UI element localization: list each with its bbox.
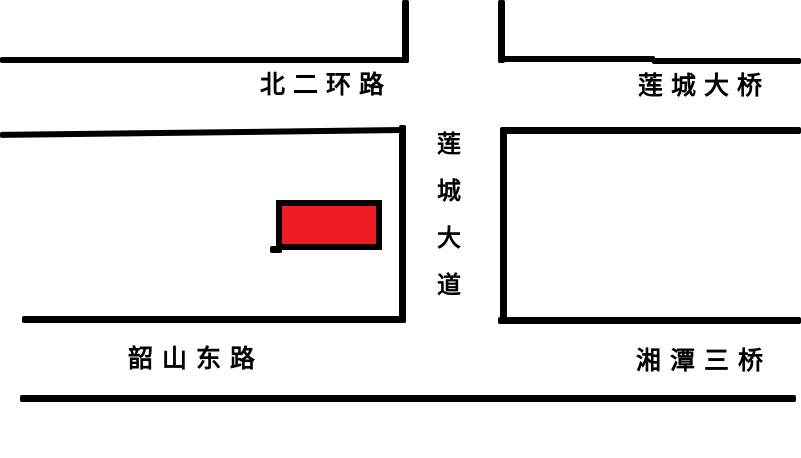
- label-liancheng-avenue-char-4: 道: [437, 274, 461, 298]
- label-liancheng-avenue-char-3: 大: [437, 227, 461, 251]
- road-line-top-right-horizontal-2: [652, 58, 801, 64]
- label-liancheng-avenue: 莲 城 大 道: [436, 133, 462, 298]
- block-right-left-edge: [500, 127, 507, 323]
- block-left-right-edge: [399, 125, 406, 323]
- red-location-marker: [276, 200, 382, 250]
- label-xiangtan-third-bridge: 湘潭三桥: [636, 349, 772, 374]
- road-line-top-left-vertical: [402, 0, 409, 63]
- block-left-bottom-edge: [22, 316, 406, 323]
- block-left-top-edge: [0, 127, 406, 138]
- map-canvas: 北二环路 莲城大桥 韶山东路 湘潭三桥 莲 城 大 道: [0, 0, 801, 458]
- road-line-bottom-horizontal: [20, 395, 796, 402]
- label-liancheng-avenue-char-1: 莲: [437, 133, 461, 157]
- red-location-marker-tail: [270, 246, 282, 253]
- block-right-bottom-edge: [498, 317, 801, 324]
- label-shaoshan-east-road: 韶山东路: [128, 347, 264, 372]
- block-right-top-edge: [501, 127, 801, 134]
- label-liancheng-bridge: 莲城大桥: [638, 74, 770, 99]
- road-line-top-right-vertical: [498, 0, 505, 63]
- label-north-second-ring-road: 北二环路: [260, 73, 392, 98]
- road-line-top-right-horizontal: [498, 56, 655, 62]
- road-line-top-left-horizontal: [0, 57, 409, 63]
- label-liancheng-avenue-char-2: 城: [437, 180, 461, 204]
